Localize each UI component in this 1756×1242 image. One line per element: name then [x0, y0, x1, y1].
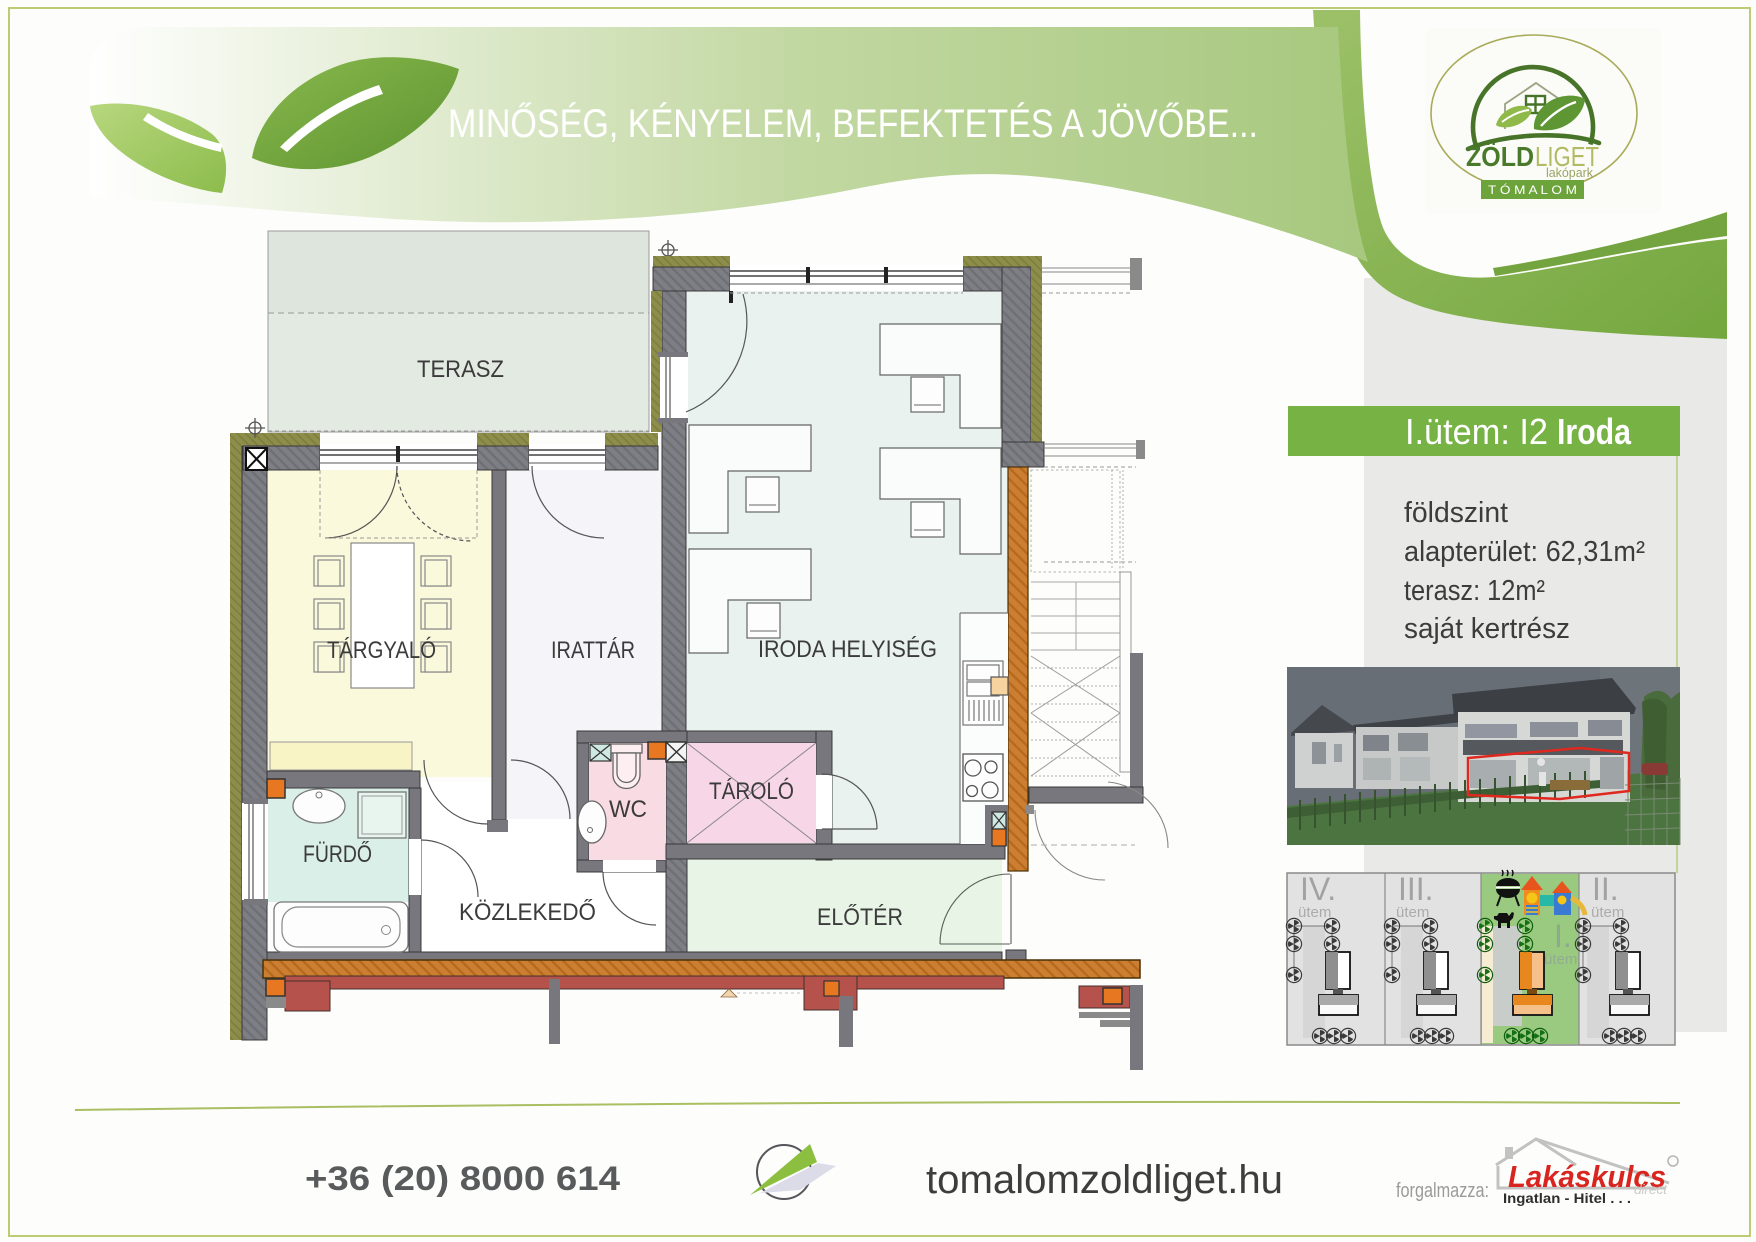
svg-text:direct: direct: [1634, 1181, 1668, 1197]
svg-text:IV.: IV.: [1300, 871, 1336, 907]
svg-text:terasz: 12m²: terasz: 12m²: [1404, 575, 1545, 607]
svg-text:T Ó M A L O M: T Ó M A L O M: [1488, 184, 1577, 197]
svg-text:ütem: ütem: [1298, 904, 1331, 921]
svg-text:tomalomzoldliget.hu: tomalomzoldliget.hu: [926, 1158, 1283, 1202]
svg-text:ELŐTÉR: ELŐTÉR: [817, 904, 903, 931]
svg-text:IRATTÁR: IRATTÁR: [551, 637, 635, 664]
svg-text:Iroda: Iroda: [1557, 411, 1632, 452]
svg-text:Ingatlan - Hitel . . .: Ingatlan - Hitel . . .: [1503, 1190, 1631, 1206]
svg-text:ütem: ütem: [1396, 904, 1429, 921]
svg-text:ZÖLD: ZÖLD: [1466, 141, 1534, 172]
svg-text:MINŐSÉG, KÉNYELEM, BEFEKTETÉS: MINŐSÉG, KÉNYELEM, BEFEKTETÉS A JÖVŐBE..…: [448, 101, 1258, 146]
svg-text:földszint: földszint: [1404, 497, 1508, 529]
svg-text:II.: II.: [1592, 871, 1619, 907]
svg-text:WC: WC: [609, 796, 647, 823]
svg-text:IRODA HELYISÉG: IRODA HELYISÉG: [758, 636, 937, 663]
svg-text:TÁROLÓ: TÁROLÓ: [709, 778, 794, 805]
svg-text:TÁRGYALÓ: TÁRGYALÓ: [327, 637, 436, 664]
svg-text:TERASZ: TERASZ: [417, 356, 504, 383]
svg-text:lakópark: lakópark: [1546, 165, 1593, 180]
svg-text:ütem: ütem: [1544, 951, 1577, 968]
svg-text:III.: III.: [1398, 871, 1434, 907]
svg-text:+36 (20) 8000 614: +36 (20) 8000 614: [305, 1160, 620, 1198]
svg-text:KÖZLEKEDŐ: KÖZLEKEDŐ: [459, 899, 596, 926]
svg-text:I.: I.: [1554, 918, 1572, 954]
svg-text:saját kertrész: saját kertrész: [1404, 613, 1570, 645]
svg-text:alapterület: 62,31m²: alapterület: 62,31m²: [1404, 536, 1645, 568]
svg-text:forgalmazza:: forgalmazza:: [1396, 1180, 1489, 1202]
svg-text:FÜRDŐ: FÜRDŐ: [303, 841, 372, 868]
svg-text:I.ütem: I2: I.ütem: I2: [1405, 411, 1548, 452]
